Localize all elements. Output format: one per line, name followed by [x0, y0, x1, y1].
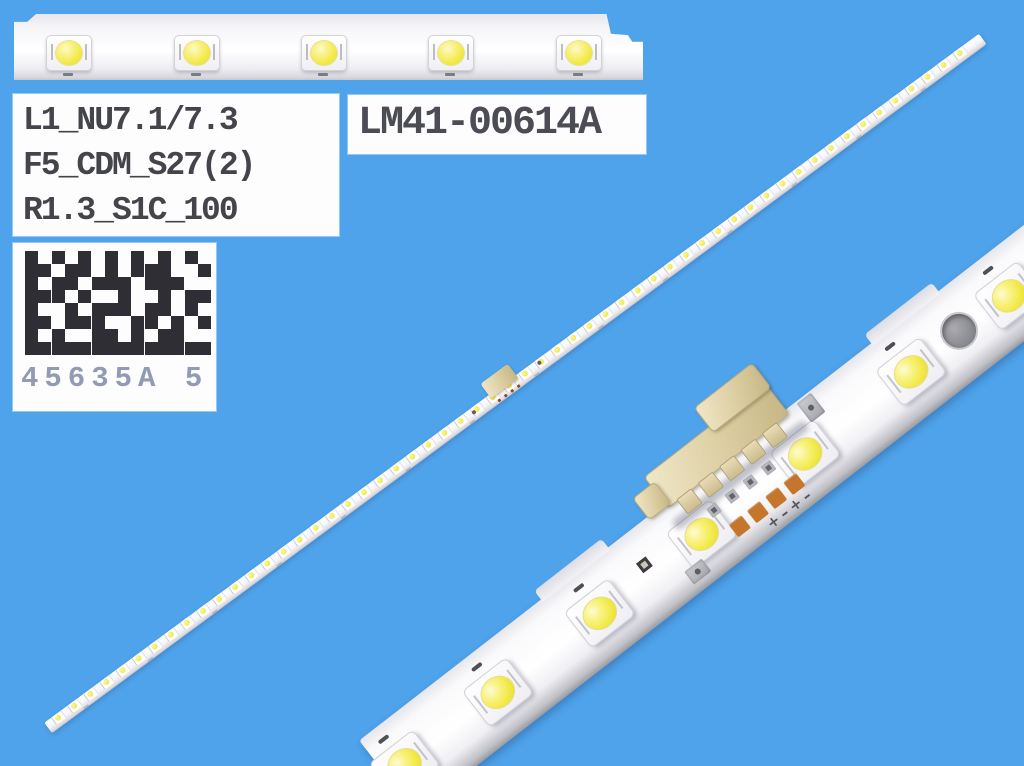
- connector-pad-dot: [510, 389, 514, 393]
- edge-notch: [727, 230, 733, 235]
- barcode-module: [171, 277, 184, 290]
- edge-notch: [663, 277, 669, 282]
- barcode-module: [158, 251, 171, 264]
- led-package-small: [421, 437, 437, 452]
- barcode-module: [105, 342, 118, 355]
- datamatrix-barcode: [25, 251, 211, 355]
- led-package-small: [389, 461, 405, 476]
- led-package-small: [807, 152, 823, 167]
- led-chip: [762, 191, 770, 199]
- barcode-module: [198, 316, 211, 329]
- spec-line-3: R1.3_S1C_100: [23, 188, 339, 233]
- led-package: [174, 35, 220, 71]
- led-chip: [843, 132, 851, 140]
- led-package-small: [453, 414, 469, 429]
- edge-notch: [791, 182, 797, 187]
- led-package-small: [373, 473, 389, 488]
- barcode-module: [105, 264, 118, 277]
- barcode-module: [52, 342, 65, 355]
- led-package-small: [131, 651, 147, 666]
- part-number-text: LM41-00614A: [358, 101, 646, 147]
- led-chip: [199, 607, 207, 615]
- led-chip: [86, 690, 94, 698]
- led-package-small: [550, 342, 566, 357]
- led-chip: [955, 49, 963, 57]
- barcode-module: [78, 251, 91, 264]
- led-chip: [794, 168, 802, 176]
- edge-notch: [598, 325, 604, 330]
- led-chip: [521, 369, 529, 377]
- edge-notch: [276, 562, 282, 567]
- led-chip: [424, 440, 432, 448]
- led-chip: [54, 713, 62, 721]
- barcode-module: [25, 329, 38, 342]
- barcode-module: [65, 316, 78, 329]
- edge-notch: [856, 135, 862, 140]
- led-chip: [392, 464, 400, 472]
- barcode-module: [118, 342, 131, 355]
- led-chip: [70, 702, 78, 710]
- barcode-module: [65, 264, 78, 277]
- barcode-module: [78, 342, 91, 355]
- barcode-module: [118, 277, 131, 290]
- solder-pad-mark: [573, 73, 583, 76]
- spec-line-2: F5_CDM_S27(2): [23, 143, 339, 188]
- led-chip: [698, 239, 706, 247]
- led-package-small: [695, 236, 711, 251]
- led-chip: [310, 40, 338, 66]
- led-chip: [134, 654, 142, 662]
- barcode-module: [131, 329, 144, 342]
- connector-pad-dot: [517, 384, 521, 388]
- barcode-module: [131, 342, 144, 355]
- led-chip: [328, 512, 336, 520]
- barcode-module: [198, 342, 211, 355]
- led-chip: [891, 96, 899, 104]
- barcode-module: [52, 290, 65, 303]
- edge-notch: [148, 657, 154, 662]
- barcode-module: [65, 342, 78, 355]
- led-chip: [376, 476, 384, 484]
- barcode-module: [25, 264, 38, 277]
- barcode-module: [185, 251, 198, 264]
- led-chip: [295, 535, 303, 543]
- led-package-small: [582, 319, 598, 334]
- led-package-small: [679, 247, 695, 262]
- barcode-module: [185, 290, 198, 303]
- led-chip: [311, 524, 319, 532]
- barcode-module: [118, 290, 131, 303]
- led-chip: [585, 322, 593, 330]
- led-chip: [714, 227, 722, 235]
- led-chip: [440, 429, 448, 437]
- barcode-module: [105, 303, 118, 316]
- led-chip: [859, 120, 867, 128]
- center-connector: [480, 364, 518, 399]
- barcode-module: [131, 264, 144, 277]
- led-chip: [569, 334, 577, 342]
- led-package-small: [743, 200, 759, 215]
- spec-line-1: L1_NU7.1/7.3: [23, 98, 339, 143]
- part-number-label: LM41-00614A: [348, 95, 646, 154]
- led-chip: [553, 346, 561, 354]
- led-package-small: [292, 532, 308, 547]
- led-chip: [939, 61, 947, 69]
- barcode-module: [78, 264, 91, 277]
- barcode-module: [145, 316, 158, 329]
- led-chip: [437, 40, 465, 66]
- led-chip: [617, 298, 625, 306]
- led-package-small: [308, 520, 324, 535]
- led-package-small: [212, 592, 228, 607]
- barcode-module: [92, 316, 105, 329]
- led-package-small: [888, 93, 904, 108]
- barcode-module: [38, 316, 51, 329]
- led-chip: [102, 678, 110, 686]
- barcode-module: [38, 342, 51, 355]
- led-package-small: [357, 485, 373, 500]
- barcode-module: [171, 342, 184, 355]
- led-package-small: [856, 117, 872, 132]
- edge-notch: [212, 609, 218, 614]
- led-chip: [150, 642, 158, 650]
- led-package-small: [518, 366, 534, 381]
- led-package-small: [437, 425, 453, 440]
- barcode-module: [25, 290, 38, 303]
- led-package-small: [630, 283, 646, 298]
- barcode-code-text: 45635A 5: [21, 359, 208, 399]
- edge-notch: [534, 372, 540, 377]
- barcode-module: [25, 303, 38, 316]
- led-chip: [730, 215, 738, 223]
- led-package-small: [759, 188, 775, 203]
- spec-label: L1_NU7.1/7.3 F5_CDM_S27(2) R1.3_S1C_100: [13, 94, 339, 236]
- barcode-module: [158, 264, 171, 277]
- barcode-module: [92, 329, 105, 342]
- led-chip: [907, 84, 915, 92]
- led-chip: [565, 40, 593, 66]
- led-package-small: [244, 568, 260, 583]
- barcode-module: [105, 251, 118, 264]
- led-package-small: [711, 224, 727, 239]
- barcode-module: [78, 316, 91, 329]
- led-package: [46, 35, 92, 71]
- led-package-small: [405, 449, 421, 464]
- led-strip-connector-closeup: +–+–: [359, 189, 1024, 766]
- led-chip: [231, 583, 239, 591]
- barcode-module: [158, 277, 171, 290]
- barcode-module: [118, 303, 131, 316]
- connector-pad-dot: [497, 398, 501, 402]
- product-photo-led-backlight-strip: L1_NU7.1/7.3 F5_CDM_S27(2) R1.3_S1C_100 …: [0, 0, 1024, 766]
- led-package-small: [663, 259, 679, 274]
- led-chip: [344, 500, 352, 508]
- led-chip: [55, 40, 83, 66]
- solder-pad-mark: [191, 73, 201, 76]
- barcode-module: [158, 303, 171, 316]
- led-chip: [456, 417, 464, 425]
- led-chip: [682, 251, 690, 259]
- led-package-small: [872, 105, 888, 120]
- led-package-small: [147, 639, 163, 654]
- barcode-module: [92, 342, 105, 355]
- led-package: [428, 35, 474, 71]
- barcode-module: [131, 251, 144, 264]
- led-chip: [118, 666, 126, 674]
- led-package-small: [791, 164, 807, 179]
- barcode-module: [38, 264, 51, 277]
- barcode-module: [198, 290, 211, 303]
- led-strip-top-closeup: [14, 14, 643, 80]
- barcode-module: [131, 316, 144, 329]
- edge-notch: [920, 87, 926, 92]
- edge-notch: [469, 419, 475, 424]
- barcode-module: [25, 342, 38, 355]
- barcode-module: [145, 303, 158, 316]
- led-chip: [167, 630, 175, 638]
- barcode-module: [52, 329, 65, 342]
- led-chip: [263, 559, 271, 567]
- led-package-small: [920, 69, 936, 84]
- barcode-module: [92, 303, 105, 316]
- led-package-small: [228, 580, 244, 595]
- barcode-module: [185, 303, 198, 316]
- led-package-small: [469, 402, 485, 417]
- barcode-module: [52, 277, 65, 290]
- solder-pad-mark: [445, 73, 455, 76]
- led-chip: [875, 108, 883, 116]
- led-chip: [183, 619, 191, 627]
- led-package-small: [904, 81, 920, 96]
- led-chip: [746, 203, 754, 211]
- led-package-small: [115, 663, 131, 678]
- led-package-small: [99, 675, 115, 690]
- barcode-module: [65, 277, 78, 290]
- led-package-small: [824, 141, 840, 156]
- tab-hole: [807, 403, 815, 411]
- solder-pad-mark: [318, 73, 328, 76]
- barcode-module: [25, 251, 38, 264]
- led-package-small: [51, 710, 67, 725]
- edge-notch: [341, 514, 347, 519]
- barcode-module: [158, 329, 171, 342]
- led-package-small: [83, 687, 99, 702]
- led-package-small: [727, 212, 743, 227]
- barcode-module: [171, 329, 184, 342]
- led-chip: [827, 144, 835, 152]
- led-package-small: [598, 307, 614, 322]
- barcode-module: [158, 290, 171, 303]
- led-chip: [279, 547, 287, 555]
- led-package-small: [180, 615, 196, 630]
- barcode-module: [78, 290, 91, 303]
- barcode-module: [171, 316, 184, 329]
- solder-pad-mark: [63, 73, 73, 76]
- barcode-module: [25, 316, 38, 329]
- led-package-small: [260, 556, 276, 571]
- barcode-module: [38, 290, 51, 303]
- led-package: [556, 35, 602, 71]
- connector-pad-dot: [504, 394, 508, 398]
- led-package-small: [341, 497, 357, 512]
- barcode-module: [145, 264, 158, 277]
- led-chip: [360, 488, 368, 496]
- led-chip: [408, 452, 416, 460]
- barcode-module: [185, 342, 198, 355]
- led-package-small: [936, 58, 952, 73]
- led-package-small: [840, 129, 856, 144]
- led-package-small: [775, 176, 791, 191]
- barcode-module: [145, 342, 158, 355]
- led-package-small: [614, 295, 630, 310]
- led-package-small: [164, 627, 180, 642]
- edge-notch: [405, 467, 411, 472]
- barcode-module: [145, 277, 158, 290]
- barcode-module: [158, 342, 171, 355]
- barcode-label: 45635A 5: [13, 243, 216, 411]
- led-package-small: [566, 330, 582, 345]
- barcode-module: [105, 329, 118, 342]
- barcode-module: [25, 277, 38, 290]
- barcode-module: [105, 277, 118, 290]
- led-package-small: [276, 544, 292, 559]
- tab-hole: [694, 567, 702, 575]
- led-chip: [247, 571, 255, 579]
- led-chip: [633, 286, 641, 294]
- barcode-module: [92, 277, 105, 290]
- edge-notch: [83, 704, 89, 709]
- led-package: [301, 35, 347, 71]
- led-chip: [923, 73, 931, 81]
- led-chip: [649, 274, 657, 282]
- led-chip: [183, 40, 211, 66]
- barcode-module: [198, 264, 211, 277]
- led-chip: [810, 156, 818, 164]
- led-package-small: [646, 271, 662, 286]
- barcode-module: [65, 303, 78, 316]
- led-chip: [985, 272, 1024, 319]
- led-package-small: [67, 698, 83, 713]
- led-package-small: [325, 509, 341, 524]
- led-chip: [215, 595, 223, 603]
- led-package-small: [196, 603, 212, 618]
- led-package-small: [952, 46, 968, 61]
- led-chip: [778, 179, 786, 187]
- led-chip: [666, 262, 674, 270]
- led-chip: [601, 310, 609, 318]
- barcode-module: [52, 251, 65, 264]
